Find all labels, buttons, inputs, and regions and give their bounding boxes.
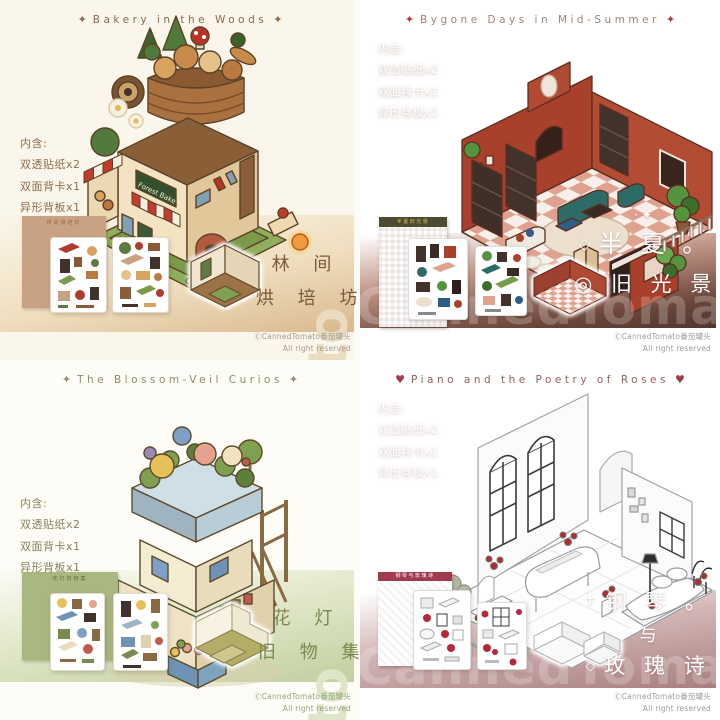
contents-item: 双透贴纸x2 — [20, 514, 81, 535]
poster-grid: CannedTomato ✦Bakery in the Woods✦ 内含: 双… — [0, 0, 720, 720]
sparkle-deco-icon: ·✦ — [574, 208, 716, 222]
panel-title: ✦Bygone Days in Mid-Summer✦ — [360, 13, 720, 26]
copyright: ⒸCannedTomato番茄罐头 All right reserved — [614, 331, 711, 354]
contents-item: 异形背板x1 — [378, 102, 439, 123]
chinese-title-text: 半 夏 。 — [599, 230, 711, 258]
cross-deco-icon: ✝ — [584, 591, 603, 609]
sticker-sheet — [477, 602, 527, 670]
chinese-title-line: ✝钢 琴 。 — [584, 586, 712, 616]
contents-item: 双面背卡x1 — [20, 176, 81, 197]
panel-bygone-days-in-mid-summer: ✦Bygone Days in Mid-Summer✦ — [360, 0, 720, 360]
chinese-title-line: 花 灯 — [258, 604, 356, 630]
copyright-rights: All right reserved — [254, 703, 351, 715]
copyright-brand: ⒸCannedTomato番茄罐头 — [254, 691, 351, 703]
copyright: ⒸCannedTomato番茄罐头 All right reserved — [254, 331, 351, 354]
contents-list: 内含: 双透贴纸x2 双面背卡x1 异形背板x1 — [20, 493, 81, 579]
contents-item: 异形背板x1 — [20, 197, 81, 218]
panel-title-text: Bakery in the Woods — [93, 14, 267, 26]
panel-blossom-veil-curios: CannedTomato ✦The Blossom-Veil Curios✦ 内… — [0, 360, 360, 720]
copyright-rights: All right reserved — [614, 343, 711, 355]
chinese-title-line: 烘 培 坊 — [256, 284, 356, 310]
contents-heading: 内含: — [378, 398, 439, 419]
card-header-label: 钢琴与玫瑰诗 — [378, 572, 452, 581]
contents-item: 双面背卡x1 — [378, 81, 439, 102]
star-ornament-icon: ✦ — [78, 13, 87, 26]
heart-ornament-icon: ♥ — [395, 373, 405, 386]
panel-title-text: The Blossom-Veil Curios — [77, 374, 283, 386]
contents-item: 异形背板x1 — [378, 462, 439, 483]
contents-heading: 内含: — [378, 38, 439, 59]
contents-heading: 内含: — [20, 133, 81, 154]
sticker-sheet — [50, 593, 105, 671]
contents-item: 双透贴纸x2 — [378, 59, 439, 80]
star-ornament-icon: ✦ — [405, 13, 414, 26]
panel-title: ✦Bakery in the Woods✦ — [0, 13, 360, 26]
copyright: ⒸCannedTomato番茄罐头 All right reserved — [614, 691, 711, 714]
chinese-title-line: 林 间 — [256, 250, 356, 276]
star-ornament-icon: ✦ — [289, 373, 298, 386]
copyright-rights: All right reserved — [254, 343, 351, 355]
contents-item: 双透贴纸x2 — [20, 154, 81, 175]
star-ornament-icon: ✦ — [62, 373, 71, 386]
chinese-title-text: 玫 瑰 诗 — [604, 654, 710, 678]
backdrop-room-board — [183, 242, 267, 316]
contents-item: 双面背卡x1 — [378, 441, 439, 462]
sticker-sheet — [413, 590, 471, 670]
panel-title-text: Piano and the Poetry of Roses — [411, 374, 669, 386]
sticker-sheet — [475, 246, 527, 316]
chinese-title-line: 旧 物 集 — [258, 638, 356, 664]
contents-list: 内含: 双透贴纸x2 双面背卡x1 异形背板x1 — [20, 133, 81, 219]
copyright-rights: All right reserved — [614, 703, 711, 715]
star-ornament-icon: ✦ — [273, 13, 282, 26]
sticker-sheet — [50, 237, 107, 313]
copyright-brand: ⒸCannedTomato番茄罐头 — [254, 331, 351, 343]
panel-title: ✦The Blossom-Veil Curios✦ — [0, 373, 360, 386]
heart-ornament-icon: ♥ — [675, 373, 685, 386]
contents-item: 双面背卡x1 — [20, 536, 81, 557]
chinese-title-line: ◎ 旧 光 景 — [574, 268, 716, 298]
chinese-title: ✝钢 琴 。 与 ◇玫 瑰 诗 — [584, 586, 712, 680]
contents-item: 双透贴纸x2 — [378, 419, 439, 440]
copyright: ⒸCannedTomato番茄罐头 All right reserved — [254, 691, 351, 714]
contents-item: 异形背板x1 — [20, 557, 81, 578]
chinese-title-text: 钢 琴 。 — [606, 590, 712, 614]
star-ornament-icon: ✦ — [666, 13, 675, 26]
copyright-brand: ⒸCannedTomato番茄罐头 — [614, 331, 711, 343]
card-header-label: 半夏旧光景 — [379, 217, 447, 227]
contents-heading: 内含: — [20, 493, 81, 514]
panel-title-text: Bygone Days in Mid-Summer — [420, 14, 660, 26]
diamond-deco-icon: ◇ — [585, 659, 601, 674]
chinese-title: 林 间 烘 培 坊 — [256, 250, 356, 318]
chinese-title: ·✦ ◇半 夏 。 ◎ 旧 光 景 — [574, 208, 716, 298]
contents-list: 内含: 双透贴纸x2 双面背卡x1 异形背板x1 — [378, 398, 439, 484]
chinese-title-line: ◇半 夏 。 — [574, 224, 716, 259]
chinese-title-line: ◇玫 瑰 诗 — [584, 650, 712, 680]
copyright-brand: ⒸCannedTomato番茄罐头 — [614, 691, 711, 703]
sticker-sheet — [112, 237, 169, 313]
chinese-title: 花 灯 旧 物 集 — [258, 604, 356, 672]
sticker-sheet — [408, 238, 468, 320]
chinese-title-line: 与 — [584, 621, 712, 646]
sticker-sheet — [113, 593, 168, 671]
contents-list: 内含: 双透贴纸x2 双面背卡x1 异形背板x1 — [378, 38, 439, 124]
panel-bakery-in-the-woods: CannedTomato ✦Bakery in the Woods✦ 内含: 双… — [0, 0, 360, 360]
panel-piano-and-poetry-of-roses: ♥Piano and the Poetry of Roses♥ — [360, 360, 720, 720]
diamond-deco-icon: ◇ — [579, 235, 596, 253]
panel-title: ♥Piano and the Poetry of Roses♥ — [360, 373, 720, 386]
